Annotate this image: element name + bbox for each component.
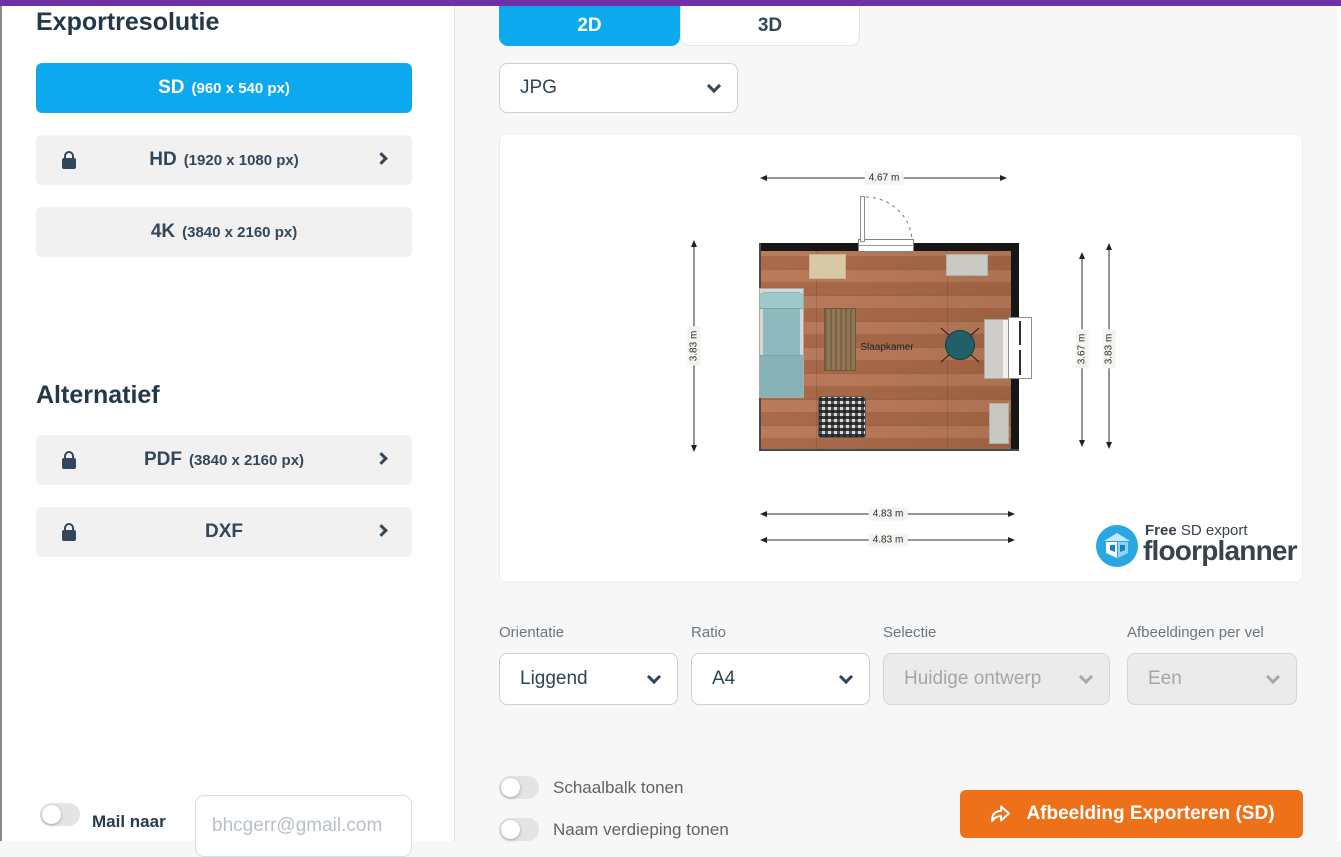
bed-blanket bbox=[760, 355, 803, 397]
dim-right-inner: 3.67 m bbox=[1076, 330, 1089, 369]
chevron-down-icon bbox=[707, 79, 721, 93]
rug-patterned bbox=[818, 396, 866, 438]
export-image-button-label: Afbeelding Exporteren (SD) bbox=[1026, 803, 1274, 825]
chevron-down-icon bbox=[647, 670, 661, 684]
door-leaf bbox=[860, 196, 865, 242]
resolution-sd-label: SD bbox=[158, 77, 184, 99]
mail-toggle[interactable] bbox=[40, 803, 80, 826]
bed bbox=[759, 288, 804, 398]
resolution-sd-button[interactable]: SD (960 x 540 px) bbox=[36, 63, 412, 113]
resolution-hd-detail: (1920 x 1080 px) bbox=[184, 152, 299, 169]
orientation-value: Liggend bbox=[520, 668, 588, 690]
toggle-knob bbox=[42, 805, 61, 824]
chevron-down-icon bbox=[1266, 670, 1280, 684]
floor-name-toggle[interactable] bbox=[499, 818, 539, 841]
mail-email-input[interactable] bbox=[195, 795, 412, 857]
ratio-value: A4 bbox=[712, 668, 735, 690]
export-sidebar: Exportresolutie SD (960 x 540 px) HD (19… bbox=[0, 6, 455, 841]
orientation-select[interactable]: Liggend bbox=[499, 653, 678, 705]
dim-top: 4.67 m bbox=[865, 172, 904, 185]
scrollbar-track[interactable] bbox=[1337, 6, 1341, 841]
dresser-bottom bbox=[989, 403, 1009, 444]
selection-select: Huidige ontwerp bbox=[883, 653, 1110, 705]
toggle-knob bbox=[501, 778, 520, 797]
door-sill bbox=[858, 239, 914, 252]
mail-label: Mail naar bbox=[92, 812, 166, 832]
alternative-dxf-button[interactable]: DXF bbox=[36, 507, 412, 557]
ratio-select[interactable]: A4 bbox=[691, 653, 870, 705]
resolution-hd-label: HD bbox=[149, 149, 176, 171]
chevron-down-icon bbox=[839, 670, 853, 684]
ratio-label: Ratio bbox=[691, 624, 726, 641]
cabinet-right bbox=[984, 319, 1009, 379]
format-select-value: JPG bbox=[520, 77, 557, 99]
tab-3d[interactable]: 3D bbox=[680, 6, 860, 46]
wall-bottom bbox=[759, 449, 1019, 451]
bed-pillow bbox=[760, 293, 803, 309]
images-per-sheet-label: Afbeeldingen per vel bbox=[1127, 624, 1264, 641]
top-accent-bar bbox=[0, 0, 1341, 6]
tab-2d-label: 2D bbox=[577, 15, 601, 37]
chevron-down-icon bbox=[1079, 670, 1093, 684]
dim-right-outer: 3.83 m bbox=[1103, 330, 1116, 369]
dresser-top bbox=[946, 254, 988, 276]
resolution-4k-detail: (3840 x 2160 px) bbox=[182, 224, 297, 241]
resolution-4k-label: 4K bbox=[151, 221, 175, 243]
scalebar-toggle-label: Schaalbalk tonen bbox=[553, 778, 683, 798]
format-select[interactable]: JPG bbox=[499, 63, 738, 113]
floorplan-preview: 4.67 m 3.83 m 3.67 m 3.83 m 4.83 m 4.83 … bbox=[499, 133, 1303, 583]
dim-left: 3.83 m bbox=[688, 327, 701, 366]
images-per-sheet-select: Een bbox=[1127, 653, 1297, 705]
lock-icon bbox=[62, 451, 76, 469]
alternative-title: Alternatief bbox=[36, 381, 160, 410]
floorplanner-logo-icon bbox=[1096, 525, 1138, 567]
alternative-pdf-label: PDF bbox=[144, 449, 182, 471]
resolution-hd-button[interactable]: HD (1920 x 1080 px) bbox=[36, 135, 412, 185]
lock-icon bbox=[62, 523, 76, 541]
orientation-label: Orientatie bbox=[499, 624, 564, 641]
watermark-floorplanner: floorplanner bbox=[1143, 535, 1297, 567]
export-icon bbox=[988, 803, 1012, 825]
window bbox=[1008, 317, 1032, 379]
dim-bottom-2: 4.83 m bbox=[869, 534, 908, 547]
tab-3d-label: 3D bbox=[758, 15, 782, 37]
sidebar-title: Exportresolutie bbox=[36, 8, 219, 37]
toggle-knob bbox=[501, 820, 520, 839]
selection-label: Selectie bbox=[883, 624, 936, 641]
lock-icon bbox=[62, 151, 76, 169]
selection-value: Huidige ontwerp bbox=[904, 668, 1041, 690]
desk bbox=[824, 308, 856, 371]
desk-chair bbox=[945, 330, 975, 360]
rug-beige bbox=[809, 254, 846, 279]
alternative-pdf-button[interactable]: PDF (3840 x 2160 px) bbox=[36, 435, 412, 485]
tab-2d[interactable]: 2D bbox=[499, 6, 680, 46]
chevron-right-icon bbox=[375, 524, 388, 537]
window-left-edge bbox=[0, 6, 2, 841]
export-image-button[interactable]: Afbeelding Exporteren (SD) bbox=[960, 790, 1303, 838]
chevron-right-icon bbox=[375, 452, 388, 465]
images-per-sheet-value: Een bbox=[1148, 668, 1182, 690]
floor-name-toggle-label: Naam verdieping tonen bbox=[553, 820, 729, 840]
alternative-pdf-detail: (3840 x 2160 px) bbox=[189, 452, 304, 469]
chevron-right-icon bbox=[375, 152, 388, 165]
room-label: Slaapkamer bbox=[855, 342, 919, 353]
alternative-dxf-label: DXF bbox=[205, 521, 243, 543]
dim-bottom-1: 4.83 m bbox=[869, 508, 908, 521]
scalebar-toggle[interactable] bbox=[499, 776, 539, 799]
resolution-4k-button[interactable]: 4K (3840 x 2160 px) bbox=[36, 207, 412, 257]
resolution-sd-detail: (960 x 540 px) bbox=[192, 80, 290, 97]
